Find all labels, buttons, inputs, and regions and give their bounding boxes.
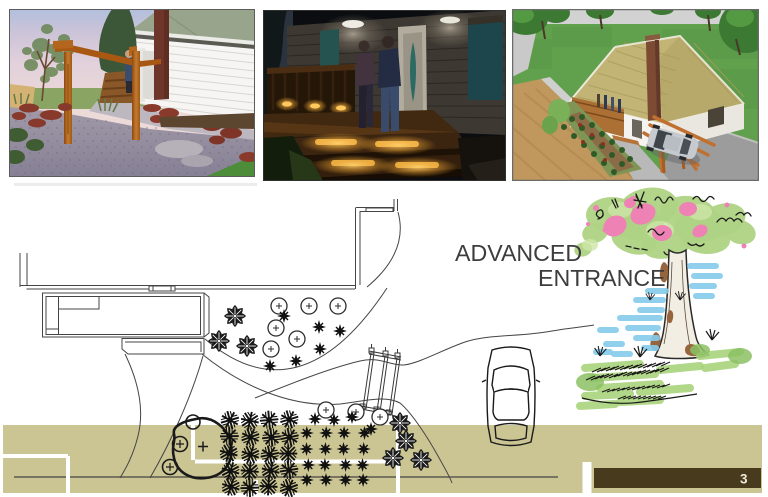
svg-text:3: 3 [740,472,748,487]
svg-text:ENTRANCE: ENTRANCE [538,265,666,291]
svg-text:ADVANCED: ADVANCED [455,240,582,266]
